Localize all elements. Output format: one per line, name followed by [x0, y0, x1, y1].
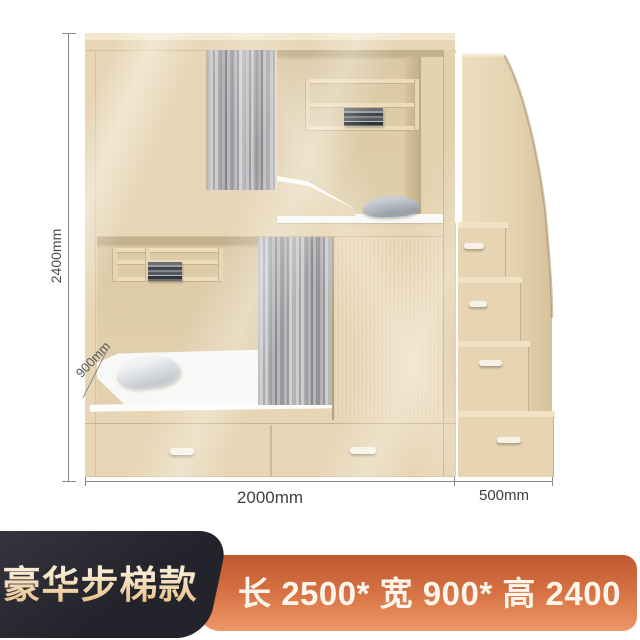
lower-shelf-board-top	[112, 248, 222, 253]
stair-step-drawer-3	[458, 347, 529, 418]
top-beam	[85, 33, 455, 40]
stair-step-drawer-2	[458, 283, 521, 348]
stair-width-dimension-tick-right	[552, 477, 553, 486]
length-dimension-line	[85, 481, 455, 482]
stair-drawer-handle-2	[469, 301, 487, 307]
stair-drawer-handle-4	[497, 437, 521, 443]
stair-width-dimension-line	[455, 481, 553, 482]
left-stile-seam	[95, 50, 96, 477]
curtain-fold-highlight	[258, 237, 332, 405]
upper-shelf-board-top	[305, 79, 418, 84]
height-dimension-label: 2400mm	[48, 224, 64, 288]
upper-shelf-side-right	[414, 79, 419, 130]
height-dimension-tick-top	[62, 33, 76, 34]
lower-sliding-panel	[332, 237, 445, 420]
curtain-fold-highlight	[208, 50, 276, 190]
right-drawer-handle	[350, 447, 376, 454]
stair-step-drawer-4	[458, 417, 554, 478]
stair-drawer-handle-1	[464, 243, 484, 249]
lower-shelf-side-left	[112, 248, 117, 281]
product-image: 2400mm 900mm 2000mm 500mm 长 2500* 宽 900*…	[0, 0, 640, 640]
length-dimension-tick-left	[85, 477, 86, 486]
stair-width-dimension-label: 500mm	[464, 487, 544, 504]
spec-banner: 长 2500* 宽 900* 高 2400	[198, 555, 637, 631]
spec-banner-label: 长 2500* 宽 900* 高 2400	[228, 555, 631, 631]
height-dimension-line	[68, 33, 69, 481]
promo-badge-label: 豪华步梯款	[0, 563, 202, 609]
stair-step-drawer-1	[458, 228, 506, 284]
height-dimension-tick-bottom	[62, 481, 76, 482]
length-dimension-label: 2000mm	[220, 488, 320, 508]
lower-bunk-curtain	[258, 237, 332, 405]
drawer-divider	[270, 425, 272, 476]
upper-bunk-curtain	[208, 50, 276, 190]
upper-shelf-books	[344, 108, 383, 126]
stair-drawer-handle-3	[479, 360, 502, 366]
upper-shelf-side-left	[305, 79, 310, 130]
drawer-top-seam	[85, 423, 455, 424]
lower-shelf-books	[148, 262, 182, 281]
lower-shelf-side-right	[218, 248, 223, 281]
left-drawer-handle	[170, 448, 194, 455]
upper-shelf-board-bottom	[305, 126, 418, 131]
upper-bunk-right-return-panel	[420, 57, 444, 215]
